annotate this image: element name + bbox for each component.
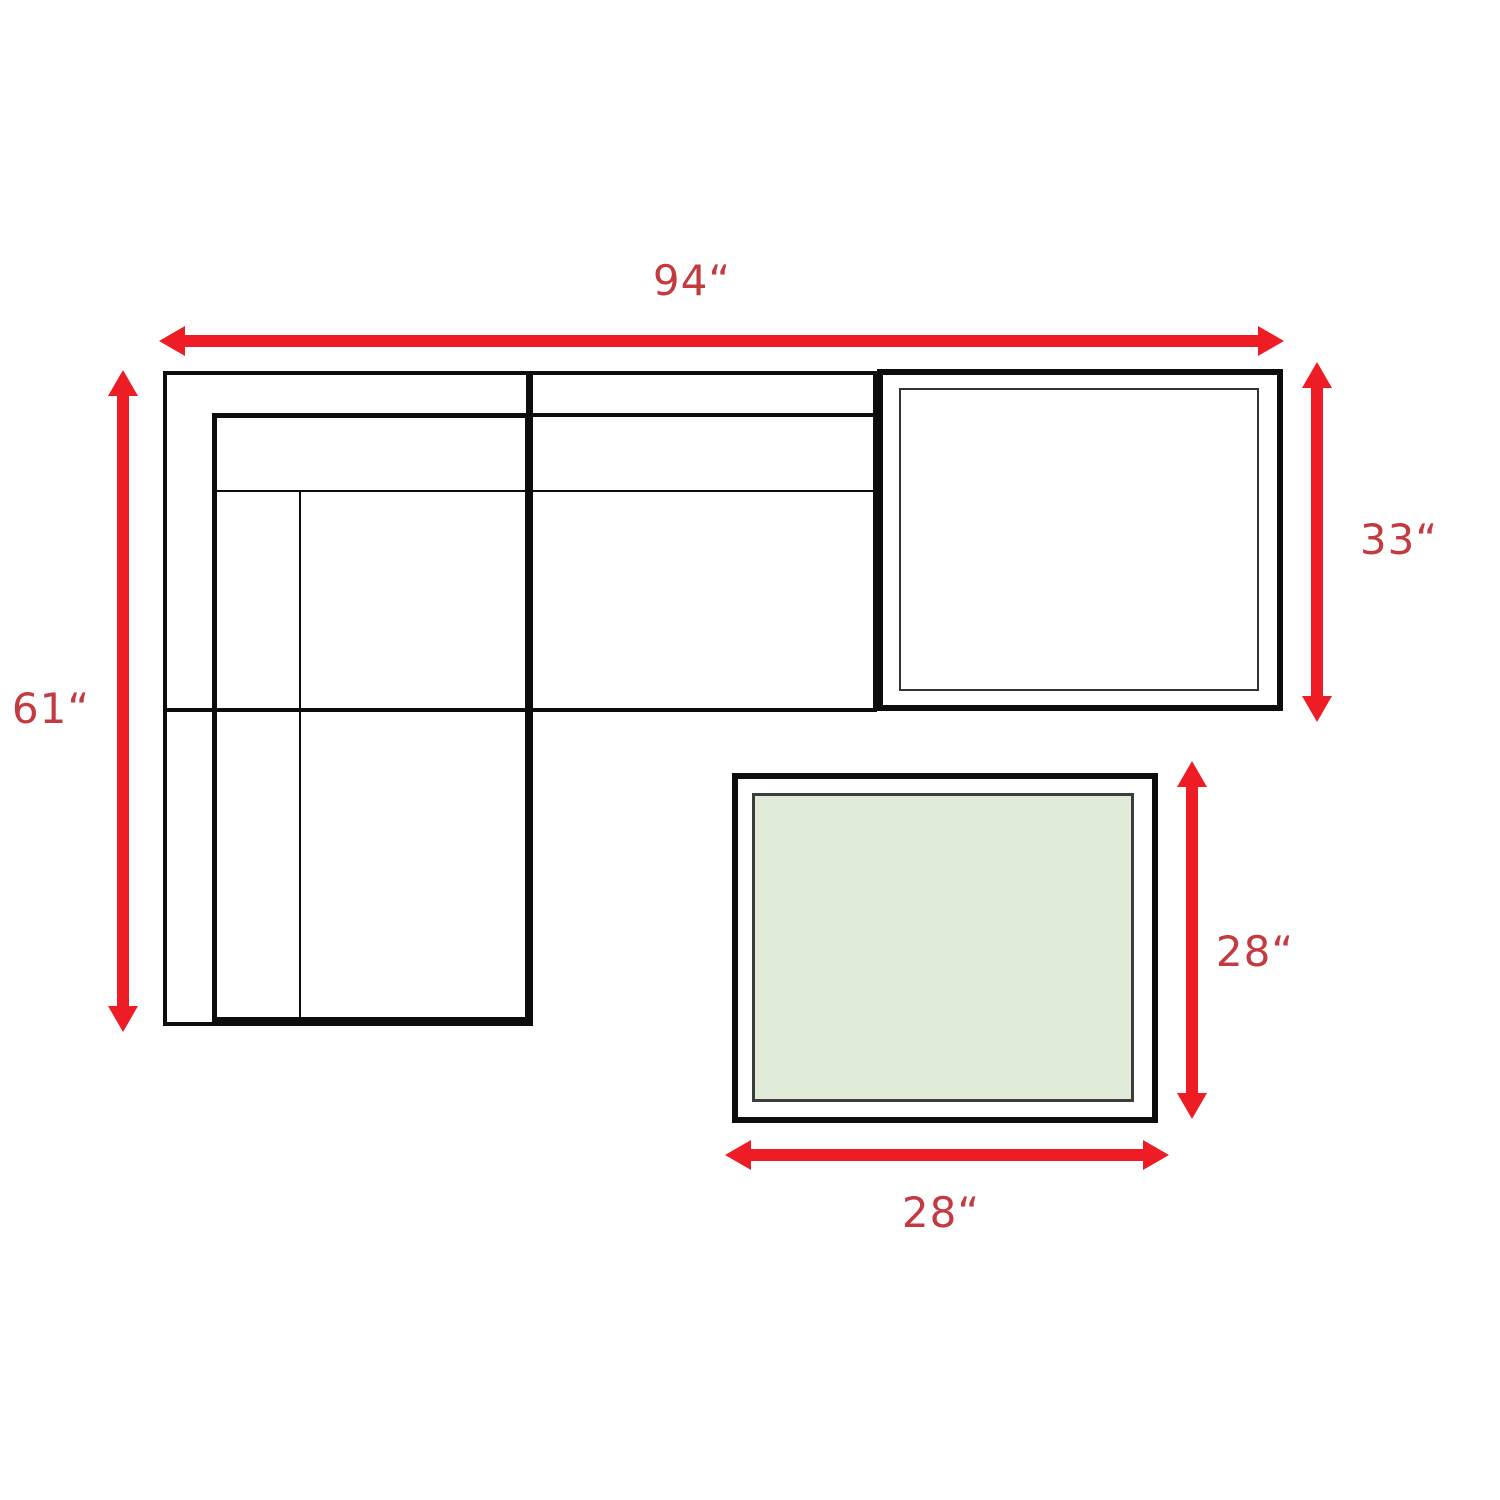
- arrow-shaft: [117, 390, 129, 1012]
- arrow-head-up-icon: [108, 370, 138, 396]
- arrow-head-right-icon: [1143, 1140, 1169, 1170]
- chaise-module-outline: [212, 413, 530, 1022]
- arrow-head-down-icon: [1302, 696, 1332, 722]
- dimension-diagram: 94“ 61“ 33“ 28“ 28“: [0, 0, 1500, 1500]
- ottoman-top-surface: [752, 793, 1134, 1102]
- sofa-backrest-line: [212, 413, 877, 417]
- sofa-width-dimension-arrow: [159, 323, 1284, 359]
- cushion-divider-line: [299, 490, 301, 1022]
- arrow-head-down-icon: [108, 1006, 138, 1032]
- arrow-head-up-icon: [1177, 761, 1207, 787]
- arrow-shaft: [745, 1149, 1149, 1161]
- ottoman-depth-label: 28“: [1195, 927, 1315, 977]
- arrow-head-right-icon: [1258, 326, 1284, 356]
- ottoman-width-label: 28“: [881, 1188, 1001, 1238]
- corner-table-depth-dimension-arrow: [1299, 362, 1335, 722]
- corner-table-inner-outline: [899, 388, 1259, 691]
- arrow-head-left-icon: [159, 326, 185, 356]
- sofa-depth-label: 61“: [0, 684, 111, 734]
- arrow-head-up-icon: [1302, 362, 1332, 388]
- sofa-width-label: 94“: [632, 256, 752, 306]
- arrow-shaft: [179, 335, 1264, 347]
- module-divider-line: [526, 371, 533, 1026]
- ottoman-width-dimension-arrow: [725, 1137, 1169, 1173]
- arrow-head-left-icon: [725, 1140, 751, 1170]
- sofa-seat-front-line: [212, 490, 877, 492]
- arrow-shaft: [1311, 382, 1323, 702]
- corner-table-depth-label: 33“: [1339, 515, 1459, 565]
- arrow-head-down-icon: [1177, 1093, 1207, 1119]
